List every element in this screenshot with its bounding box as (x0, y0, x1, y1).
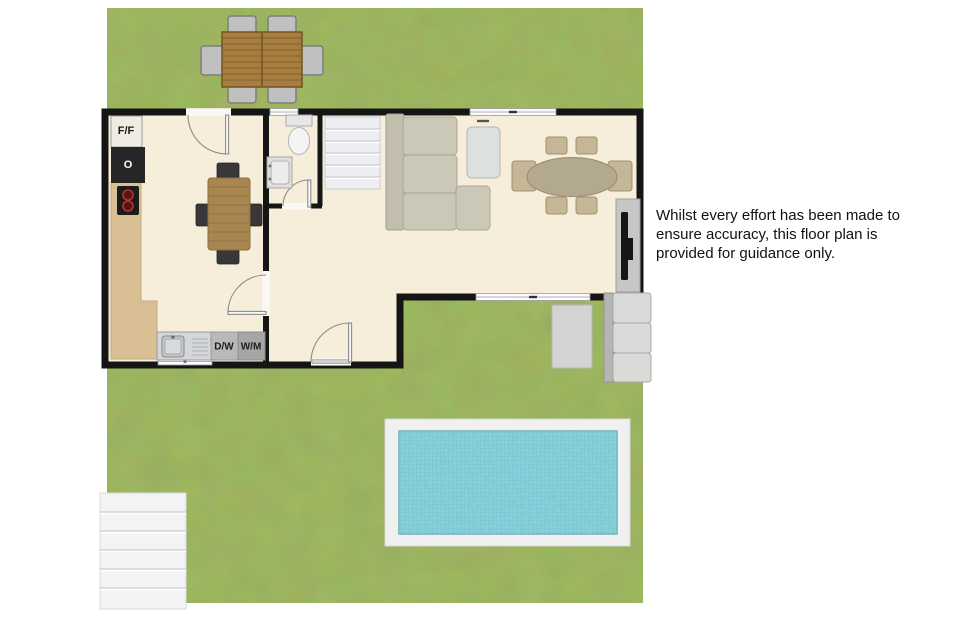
dishwasher-label: D/W (214, 342, 233, 353)
disclaimer-line: ensure accuracy, this floor plan is (656, 225, 918, 244)
kitchen-chair (217, 163, 239, 179)
patio-table (552, 305, 592, 368)
garden-chair (301, 46, 323, 75)
garden-steps (100, 493, 186, 609)
toilet (286, 115, 312, 155)
disclaimer-line: Whilst every effort has been made to (656, 206, 918, 225)
fridge-freezer-label: F/F (118, 125, 135, 137)
living-bottom-window (476, 294, 590, 301)
coffee-table (467, 121, 500, 178)
floor-plan-graphic (0, 0, 960, 640)
garden-chair (201, 46, 223, 75)
tv-unit (616, 199, 640, 292)
dining-chair (546, 197, 567, 214)
dining-chair (576, 197, 597, 214)
dining-chair (576, 137, 597, 154)
basin (267, 157, 292, 188)
tv (621, 212, 628, 280)
kitchen-table (208, 178, 250, 250)
wc-window (270, 109, 298, 116)
living-top-window (470, 109, 556, 116)
disclaimer-line: provided for guidance only. (656, 244, 918, 263)
swimming-pool (385, 419, 630, 546)
disclaimer-text: Whilst every effort has been made to ens… (656, 206, 918, 263)
sink-unit (157, 332, 211, 360)
floor-plan-canvas: F/F O D/W W/M Whilst every effort has be… (0, 0, 960, 640)
garden-table (222, 32, 302, 87)
staircase (325, 117, 380, 189)
dining-table (527, 158, 617, 197)
dining-chair (546, 137, 567, 154)
washing-machine-label: W/M (241, 342, 262, 353)
oven-label: O (124, 159, 133, 171)
patio-sofa (604, 293, 651, 382)
hob (117, 186, 139, 215)
